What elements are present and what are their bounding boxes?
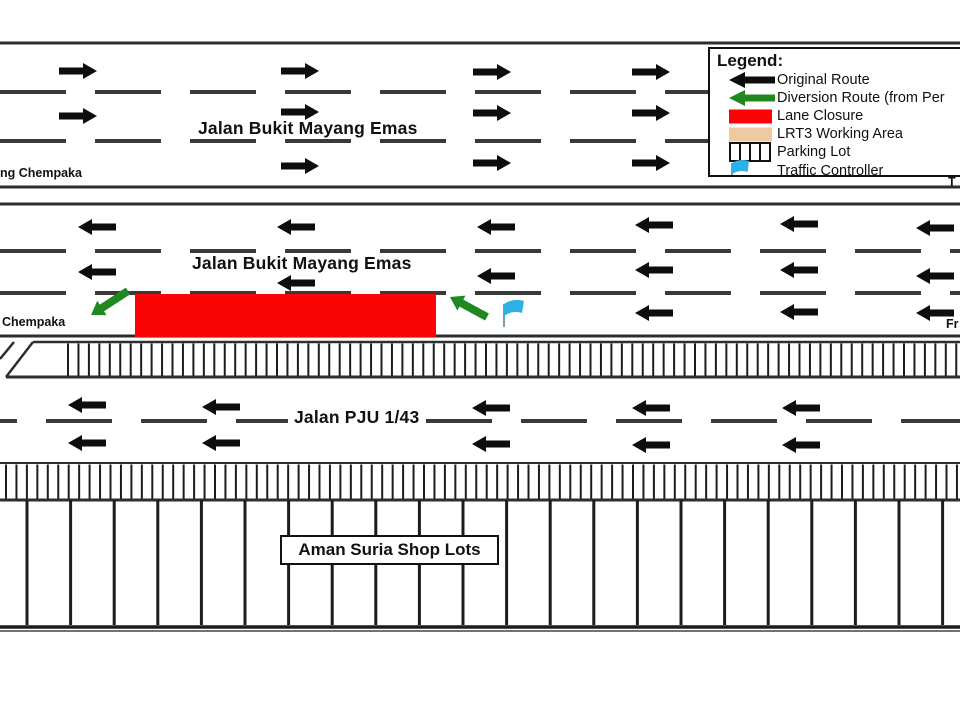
route-arrow-icon bbox=[59, 108, 97, 124]
route-arrow-icon bbox=[477, 268, 515, 284]
legend-item-label: Parking Lot bbox=[777, 144, 850, 160]
route-arrow-icon bbox=[202, 399, 240, 415]
route-arrow-icon bbox=[782, 400, 820, 416]
parking-strip bbox=[0, 342, 960, 377]
original-route-arrow-icon bbox=[717, 72, 777, 88]
route-arrow-icon bbox=[59, 63, 97, 79]
route-arrow-icon bbox=[78, 219, 116, 235]
road-label-pju: Jalan PJU 1/43 bbox=[288, 407, 425, 428]
route-arrow-icon bbox=[473, 155, 511, 171]
route-arrow-icon bbox=[472, 400, 510, 416]
route-arrow-icon bbox=[780, 304, 818, 320]
route-arrow-icon bbox=[473, 64, 511, 80]
legend-item: Traffic Controller bbox=[717, 161, 960, 177]
legend-panel: Legend: Original RouteDiversion Route (f… bbox=[708, 47, 960, 177]
route-arrow-icon bbox=[68, 435, 106, 451]
route-arrow-icon bbox=[78, 264, 116, 280]
lane-closure-swatch-icon bbox=[717, 109, 777, 124]
route-arrow-icon bbox=[780, 262, 818, 278]
route-arrow-icon bbox=[281, 63, 319, 79]
route-arrow-icon bbox=[477, 219, 515, 235]
route-arrow-icon bbox=[202, 435, 240, 451]
route-arrow-icon bbox=[635, 305, 673, 321]
parking-strip bbox=[0, 463, 960, 500]
route-arrow-icon bbox=[632, 437, 670, 453]
road-label-top: Jalan Bukit Mayang Emas bbox=[198, 118, 418, 139]
diversion-route-arrow-icon bbox=[717, 90, 777, 106]
traffic-diversion-diagram: Jalan Bukit Mayang Emas Jalan Bukit Maya… bbox=[0, 0, 960, 720]
legend-items: Original RouteDiversion Route (from PerL… bbox=[717, 71, 960, 177]
shop-lots-label: Aman Suria Shop Lots bbox=[280, 535, 499, 565]
route-arrow-icon bbox=[916, 268, 954, 284]
legend-item-label: LRT3 Working Area bbox=[777, 126, 903, 142]
legend-title: Legend: bbox=[717, 50, 960, 71]
road-arrows-pju bbox=[68, 397, 820, 453]
legend-item: Diversion Route (from Per bbox=[717, 89, 960, 107]
route-arrow-icon bbox=[916, 220, 954, 236]
route-arrow-icon bbox=[472, 436, 510, 452]
shop-lots bbox=[0, 500, 960, 631]
legend-item: LRT3 Working Area bbox=[717, 125, 960, 143]
route-arrow-icon bbox=[68, 397, 106, 413]
route-arrow-icon bbox=[473, 105, 511, 121]
route-arrow-icon bbox=[277, 219, 315, 235]
route-arrow-icon bbox=[632, 105, 670, 121]
traffic-controller-flag-icon bbox=[504, 300, 524, 327]
legend-item-label: Traffic Controller bbox=[777, 163, 883, 177]
legend-item-label: Original Route bbox=[777, 72, 870, 88]
route-arrow-icon bbox=[780, 216, 818, 232]
edge-label-middle-right: Fr bbox=[946, 317, 959, 331]
legend-item-label: Lane Closure bbox=[777, 108, 863, 124]
legend-item-label: Diversion Route (from Per bbox=[777, 90, 945, 106]
route-arrow-icon bbox=[632, 155, 670, 171]
route-arrow-icon bbox=[277, 275, 315, 291]
road-label-middle: Jalan Bukit Mayang Emas bbox=[192, 253, 412, 274]
lrt3-working-area-swatch-icon bbox=[717, 127, 777, 142]
route-arrow-icon bbox=[281, 158, 319, 174]
legend-item: Lane Closure bbox=[717, 107, 960, 125]
legend-item: Original Route bbox=[717, 71, 960, 89]
diversion-arrow-icon bbox=[86, 284, 132, 322]
route-arrow-icon bbox=[632, 64, 670, 80]
route-arrow-icon bbox=[782, 437, 820, 453]
route-arrow-icon bbox=[632, 400, 670, 416]
lane-closure-rect bbox=[135, 294, 436, 337]
edge-label-top-right: T bbox=[948, 175, 956, 189]
traffic-controller-flag-icon bbox=[717, 159, 777, 177]
edge-label-top-left: ng Chempaka bbox=[0, 166, 82, 180]
route-arrow-icon bbox=[635, 262, 673, 278]
edge-label-middle-left: Chempaka bbox=[2, 315, 65, 329]
route-arrow-icon bbox=[635, 217, 673, 233]
